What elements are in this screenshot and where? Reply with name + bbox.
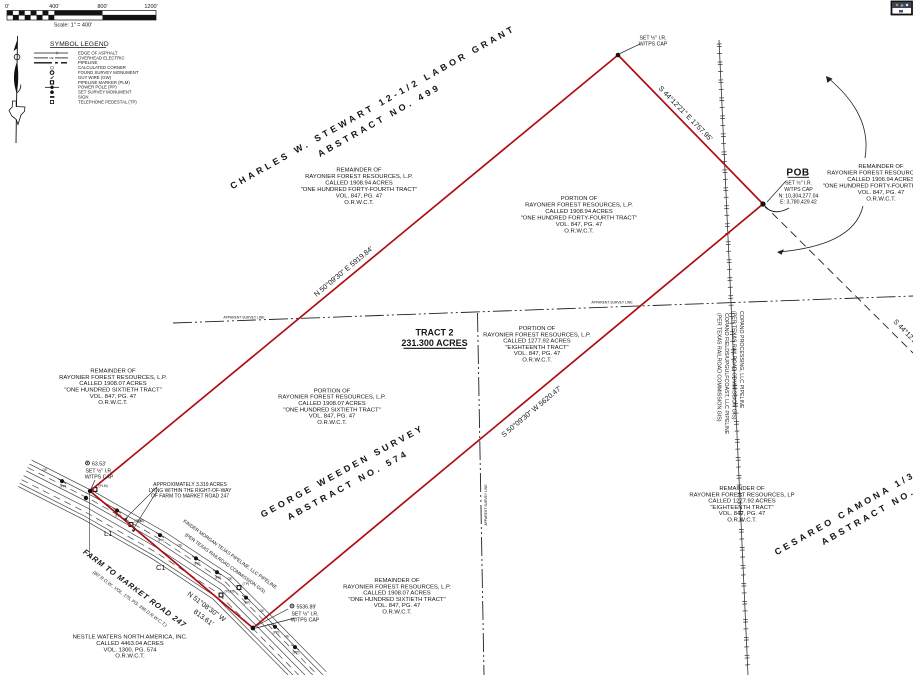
svg-text:VOL. 847, PG. 47: VOL. 847, PG. 47 bbox=[374, 603, 421, 609]
svg-text:NESTLE WATERS NORTH AMERICA, I: NESTLE WATERS NORTH AMERICA, INC. bbox=[73, 635, 188, 641]
svg-text:SET ½" I.R.: SET ½" I.R. bbox=[85, 468, 112, 475]
svg-text:VOL. 847, PG. 47: VOL. 847, PG. 47 bbox=[309, 414, 356, 420]
svg-text:COPANO FIELDS/UPGULFCOAST, LLC: COPANO FIELDS/UPGULFCOAST, LLC PIPELINE bbox=[723, 313, 729, 435]
svg-text:OF FARM TO MARKET ROAD 247: OF FARM TO MARKET ROAD 247 bbox=[151, 494, 229, 500]
svg-text:REMAINDER OF: REMAINDER OF bbox=[858, 164, 904, 170]
svg-text:231.300 ACRES: 231.300 ACRES bbox=[401, 338, 467, 348]
svg-text:W/TPS CAP: W/TPS CAP bbox=[85, 475, 114, 481]
svg-text:OE: OE bbox=[49, 56, 53, 60]
svg-text:"ONE HUNDRED SIXTIETH TRACT": "ONE HUNDRED SIXTIETH TRACT" bbox=[283, 407, 380, 413]
svg-text:E: 3,780,429.42: E: 3,780,429.42 bbox=[780, 200, 817, 206]
svg-text:O.R.W.C.T.: O.R.W.C.T. bbox=[866, 197, 896, 203]
svg-text:PORTION OF: PORTION OF bbox=[314, 388, 351, 394]
svg-text:(PP): (PP) bbox=[194, 562, 201, 566]
svg-text:1200': 1200' bbox=[144, 4, 157, 10]
svg-text:(PP): (PP) bbox=[244, 601, 251, 605]
svg-text:(PP): (PP) bbox=[293, 651, 300, 655]
svg-text:CALLED 1277.92 ACRES: CALLED 1277.92 ACRES bbox=[708, 499, 776, 505]
svg-text:TELEPHONE PEDESTAL (TP): TELEPHONE PEDESTAL (TP) bbox=[78, 99, 137, 104]
svg-text:CALLED 4463.04 ACRES: CALLED 4463.04 ACRES bbox=[96, 641, 164, 647]
svg-text:PORTION OF: PORTION OF bbox=[519, 326, 556, 332]
svg-text:O.R.W.C.T.: O.R.W.C.T. bbox=[317, 420, 347, 426]
svg-text:VOL. 847, PG. 47: VOL. 847, PG. 47 bbox=[514, 351, 561, 357]
svg-text:(PP): (PP) bbox=[158, 539, 165, 543]
svg-text:RAYONIER FOREST RESOURCES, L.P: RAYONIER FOREST RESOURCES, L.P. bbox=[59, 375, 167, 381]
svg-text:CALLED 1908.07 ACRES: CALLED 1908.07 ACRES bbox=[79, 381, 147, 387]
svg-text:"ONE HUNDRED FORTY-FOURTH TRAC: "ONE HUNDRED FORTY-FOURTH TRACT" bbox=[521, 216, 638, 222]
svg-text:VOL. 1300, PG. 574: VOL. 1300, PG. 574 bbox=[103, 647, 157, 653]
svg-text:RAYONIER FOREST RESOURCES, L.P: RAYONIER FOREST RESOURCES, L.P. bbox=[827, 171, 913, 177]
svg-text:Scale: 1" = 400': Scale: 1" = 400' bbox=[54, 23, 92, 29]
svg-text:APPARENT SURVEY LINE: APPARENT SURVEY LINE bbox=[591, 301, 633, 305]
svg-text:CALLED 1906.94 ACRES: CALLED 1906.94 ACRES bbox=[847, 177, 913, 183]
svg-text:O.R.W.C.T.: O.R.W.C.T. bbox=[98, 400, 128, 406]
svg-text:O.R.W.C.T.: O.R.W.C.T. bbox=[727, 518, 757, 524]
svg-text:800': 800' bbox=[97, 4, 107, 10]
svg-text:O.R.W.C.T.: O.R.W.C.T. bbox=[564, 229, 594, 235]
svg-text:RAYONIER FOREST RESOURCES, L.P: RAYONIER FOREST RESOURCES, L.P. bbox=[343, 584, 451, 590]
svg-text:(PLM): (PLM) bbox=[99, 484, 108, 488]
svg-text:OE: OE bbox=[43, 468, 49, 472]
svg-text:RAYONIER FOREST RESOURCES, LP: RAYONIER FOREST RESOURCES, LP bbox=[689, 492, 794, 498]
svg-text:L1: L1 bbox=[104, 529, 112, 538]
svg-text:(PLM): (PLM) bbox=[225, 590, 234, 594]
svg-text:VOL. 847, PG. 47: VOL. 847, PG. 47 bbox=[90, 394, 137, 400]
svg-text:"EIGHTEENTH TRACT": "EIGHTEENTH TRACT" bbox=[710, 505, 773, 511]
svg-text:W/TPS CAP: W/TPS CAP bbox=[291, 618, 320, 624]
svg-text:400': 400' bbox=[49, 4, 59, 10]
svg-text:REMAINDER OF: REMAINDER OF bbox=[374, 578, 420, 584]
svg-text:CALLED 1908.07 ACRES: CALLED 1908.07 ACRES bbox=[363, 591, 431, 597]
svg-text:CALLED 1908.94 ACRES: CALLED 1908.94 ACRES bbox=[325, 181, 393, 187]
svg-text:RAYONIER FOREST RESOURCES, L.P: RAYONIER FOREST RESOURCES, L.P. bbox=[525, 203, 633, 209]
svg-text:"ONE HUNDRED FORTY-FOURTH TRAC: "ONE HUNDRED FORTY-FOURTH TRACT" bbox=[301, 187, 418, 193]
svg-text:REMAINDER OF: REMAINDER OF bbox=[90, 369, 136, 375]
svg-text:"ONE HUNDRED FORTY-FOURTH TRAC: "ONE HUNDRED FORTY-FOURTH TRACT" bbox=[823, 184, 913, 190]
svg-text:(PP): (PP) bbox=[60, 485, 67, 489]
svg-text:COPANO PROCESSING, LLC PIPELIN: COPANO PROCESSING, LLC PIPELINE bbox=[738, 311, 744, 409]
svg-text:N: 10,304,277.04: N: 10,304,277.04 bbox=[779, 193, 819, 199]
svg-text:RAYONIER FOREST RESOURCES, L.P: RAYONIER FOREST RESOURCES, L.P. bbox=[483, 332, 591, 338]
svg-text:O.R.W.C.T.: O.R.W.C.T. bbox=[382, 610, 412, 616]
svg-text:SET ½" I.R.: SET ½" I.R. bbox=[291, 611, 318, 618]
svg-text:W/TPS CAP: W/TPS CAP bbox=[639, 42, 668, 48]
svg-text:OE: OE bbox=[228, 577, 234, 581]
svg-text:C1: C1 bbox=[156, 563, 166, 572]
svg-text:RAYONIER FOREST RESOURCES, L.P: RAYONIER FOREST RESOURCES, L.P. bbox=[305, 174, 413, 180]
svg-text:"EIGHTEENTH TRACT": "EIGHTEENTH TRACT" bbox=[505, 345, 568, 351]
svg-text:CALLED 1908.07 ACRES: CALLED 1908.07 ACRES bbox=[298, 401, 366, 407]
svg-text:POB: POB bbox=[786, 168, 809, 179]
svg-text:SET ½" I.R.: SET ½" I.R. bbox=[785, 180, 812, 187]
svg-text:OE: OE bbox=[178, 543, 184, 547]
svg-text:(PP): (PP) bbox=[215, 576, 222, 580]
svg-text:VOL. 847, PG. 47: VOL. 847, PG. 47 bbox=[556, 222, 603, 228]
svg-text:63.53': 63.53' bbox=[92, 462, 106, 468]
svg-text:SET ½" I.R.: SET ½" I.R. bbox=[639, 35, 666, 42]
svg-text:O.R.W.C.T.: O.R.W.C.T. bbox=[344, 200, 374, 206]
svg-text:APPARENT SURVEY LINE: APPARENT SURVEY LINE bbox=[484, 484, 488, 526]
svg-text:REMAINDER OF: REMAINDER OF bbox=[336, 168, 382, 174]
svg-text:5536.89': 5536.89' bbox=[297, 605, 317, 611]
svg-text:PORTION OF: PORTION OF bbox=[561, 196, 598, 202]
svg-text:CALLED 1277.92 ACRES: CALLED 1277.92 ACRES bbox=[503, 339, 571, 345]
svg-text:OE: OE bbox=[260, 609, 266, 613]
svg-text:RAYONIER FOREST RESOURCES, L.P: RAYONIER FOREST RESOURCES, L.P. bbox=[278, 395, 386, 401]
svg-text:VOL. 847, PG. 47: VOL. 847, PG. 47 bbox=[719, 511, 766, 517]
svg-text:0': 0' bbox=[5, 4, 9, 10]
svg-text:VOL. 847, PG. 47: VOL. 847, PG. 47 bbox=[336, 194, 383, 200]
svg-text:CALLED 1908.94 ACRES: CALLED 1908.94 ACRES bbox=[545, 209, 613, 215]
svg-text:W/TPS CAP: W/TPS CAP bbox=[784, 187, 813, 193]
svg-text:VOL. 847, PG. 47: VOL. 847, PG. 47 bbox=[858, 190, 905, 196]
svg-text:TRACT 2: TRACT 2 bbox=[416, 328, 454, 338]
svg-text:REMAINDER OF: REMAINDER OF bbox=[719, 486, 765, 492]
svg-text:OE: OE bbox=[285, 635, 291, 639]
svg-text:(PP): (PP) bbox=[273, 630, 280, 634]
svg-text:O.R.W.C.T.: O.R.W.C.T. bbox=[115, 654, 145, 660]
svg-text:"ONE HUNDRED SIXTIETH TRACT": "ONE HUNDRED SIXTIETH TRACT" bbox=[348, 597, 445, 603]
svg-text:(PER TEXAS RAILROAD COMMISSION: (PER TEXAS RAILROAD COMMISSION GIS) bbox=[731, 311, 737, 420]
svg-text:(PER TEXAS RAILROAD COMMISSION: (PER TEXAS RAILROAD COMMISSION GIS) bbox=[716, 313, 722, 422]
svg-text:APPARENT SURVEY LINE: APPARENT SURVEY LINE bbox=[223, 316, 265, 320]
svg-text:SYMBOL LEGEND: SYMBOL LEGEND bbox=[50, 41, 109, 48]
svg-text:"ONE HUNDRED SIXTIETH TRACT": "ONE HUNDRED SIXTIETH TRACT" bbox=[64, 388, 161, 394]
svg-text:O.R.W.C.T.: O.R.W.C.T. bbox=[522, 358, 552, 364]
